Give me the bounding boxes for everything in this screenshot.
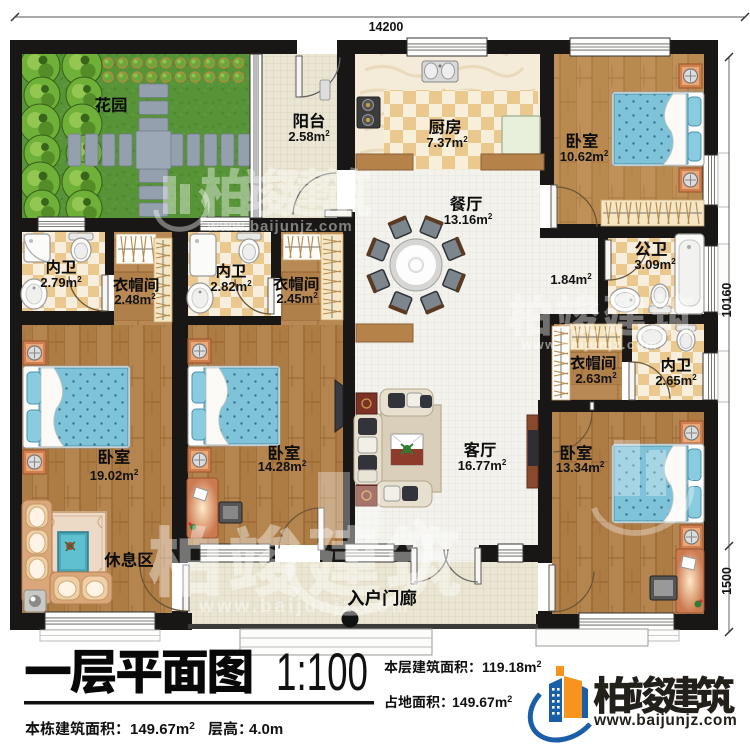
svg-text:2.63m2: 2.63m2	[575, 371, 617, 386]
svg-text:10160: 10160	[720, 283, 734, 318]
svg-text:4.0m: 4.0m	[249, 721, 283, 738]
svg-text:2.48m2: 2.48m2	[114, 292, 156, 307]
svg-text:2.58m2: 2.58m2	[288, 129, 330, 144]
svg-text:2.65m2: 2.65m2	[655, 373, 697, 388]
svg-text:www.baijunjz.com: www.baijunjz.com	[206, 218, 352, 235]
svg-text:2.45m2: 2.45m2	[276, 291, 318, 306]
svg-text:1:100: 1:100	[276, 643, 368, 702]
svg-text:2.79m2: 2.79m2	[40, 275, 82, 290]
svg-text:10.62m2: 10.62m2	[560, 149, 609, 164]
svg-text:13.16m2: 13.16m2	[444, 212, 493, 227]
svg-text:www.baijunjz.com: www.baijunjz.com	[521, 337, 658, 352]
svg-text:16.77m2: 16.77m2	[458, 458, 507, 473]
svg-text:2.82m2: 2.82m2	[210, 279, 252, 294]
svg-text:149.67m2: 149.67m2	[452, 694, 512, 710]
svg-text:13.34m2: 13.34m2	[556, 460, 605, 475]
svg-text:1500: 1500	[720, 567, 734, 595]
svg-text:19.02m2: 19.02m2	[90, 468, 139, 483]
svg-text:14.28m2: 14.28m2	[258, 459, 307, 474]
svg-text:7.37m2: 7.37m2	[426, 135, 468, 150]
svg-text:www.baijunjz.com: www.baijunjz.com	[593, 712, 737, 729]
svg-text:3.09m2: 3.09m2	[634, 257, 676, 272]
svg-text:14200: 14200	[369, 20, 404, 34]
svg-text:1.84m2: 1.84m2	[550, 272, 592, 287]
svg-text:119.18m2: 119.18m2	[482, 659, 542, 675]
svg-text:149.67m2: 149.67m2	[130, 721, 195, 738]
